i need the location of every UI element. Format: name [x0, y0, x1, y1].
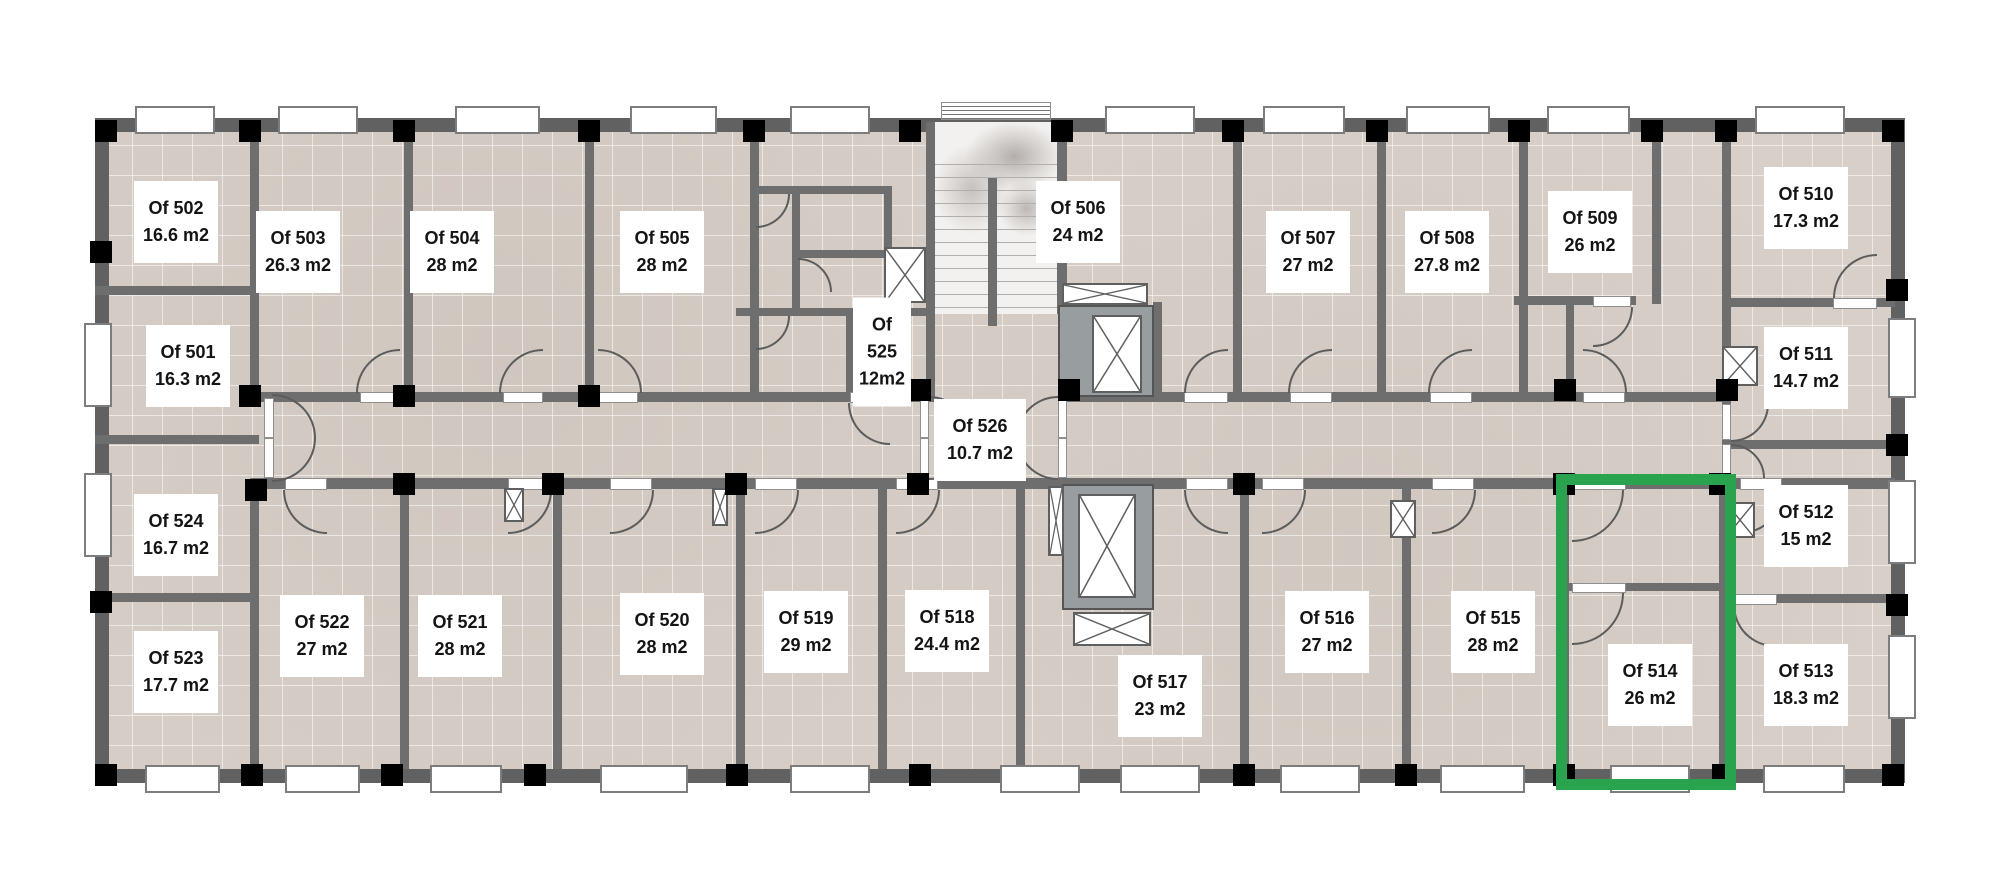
window — [1000, 765, 1080, 793]
room-id: Of 519 — [766, 605, 846, 632]
shaft-cross-icon — [1048, 486, 1064, 556]
room-id: Of 522 — [282, 609, 362, 636]
structural-column — [1233, 473, 1255, 495]
structural-column — [1058, 379, 1080, 401]
interior-wall — [1377, 132, 1386, 394]
room-label-of-504[interactable]: Of 50428 m2 — [410, 211, 494, 293]
room-label-of-524[interactable]: Of 52416.7 m2 — [134, 494, 218, 576]
door-opening — [1735, 594, 1777, 605]
structural-column — [1715, 120, 1737, 142]
window — [1280, 765, 1360, 793]
interior-wall — [250, 482, 259, 769]
structural-column — [1233, 764, 1255, 786]
structural-column — [1051, 120, 1073, 142]
room-label-of-511[interactable]: Of 51114.7 m2 — [1764, 327, 1848, 409]
door-opening — [1058, 438, 1067, 478]
door-opening — [1722, 444, 1731, 476]
room-area: 26 m2 — [1550, 232, 1630, 259]
room-id: Of 508 — [1407, 225, 1487, 252]
door-opening — [920, 398, 929, 438]
room-area: 28 m2 — [412, 252, 492, 279]
structural-column — [1886, 279, 1908, 301]
room-label-of-501[interactable]: Of 50116.3 m2 — [146, 325, 230, 407]
selected-room-highlight-of-514 — [1556, 474, 1736, 790]
window — [135, 106, 215, 134]
door-opening — [598, 392, 638, 403]
room-area: 28 m2 — [420, 636, 500, 663]
structural-column — [909, 379, 931, 401]
room-id: Of 509 — [1550, 205, 1630, 232]
room-id: Of 511 — [1766, 341, 1846, 368]
room-label-of-518[interactable]: Of 51824.4 m2 — [905, 590, 989, 672]
interior-wall — [884, 190, 892, 252]
room-label-of-506[interactable]: Of 50624 m2 — [1036, 181, 1120, 263]
structural-column — [1395, 764, 1417, 786]
structural-column — [239, 120, 261, 142]
window — [285, 765, 360, 793]
staircase-rail — [988, 178, 997, 326]
door-opening — [1058, 398, 1067, 438]
structural-column — [743, 120, 765, 142]
room-id: Of 520 — [622, 607, 702, 634]
room-id: Of 502 — [136, 195, 216, 222]
room-area: 27 m2 — [1268, 252, 1348, 279]
room-label-of-522[interactable]: Of 52227 m2 — [280, 595, 364, 677]
interior-wall — [585, 132, 594, 394]
shaft-cross-icon — [504, 488, 524, 522]
window — [1888, 635, 1916, 719]
room-area: 24 m2 — [1038, 222, 1118, 249]
interior-wall — [95, 435, 259, 444]
interior-wall — [1153, 302, 1162, 394]
window — [600, 765, 688, 793]
room-area: 14.7 m2 — [1766, 368, 1846, 395]
interior-wall — [750, 132, 759, 394]
room-area: 16.3 m2 — [148, 366, 228, 393]
structural-column — [1554, 379, 1576, 401]
interior-wall — [1722, 122, 1731, 304]
interior-wall — [1016, 482, 1025, 769]
room-id: Of 504 — [412, 225, 492, 252]
room-label-of-521[interactable]: Of 52128 m2 — [418, 595, 502, 677]
door-opening — [610, 478, 652, 490]
structural-column — [90, 591, 112, 613]
structural-column — [1508, 120, 1530, 142]
room-id: Of 526 — [936, 413, 1024, 440]
structural-column — [524, 764, 546, 786]
staircase-hatch — [941, 102, 1051, 120]
shaft-cross-icon — [1078, 494, 1136, 598]
room-id: Of 525 — [855, 312, 909, 366]
room-area: 10.7 m2 — [936, 440, 1024, 467]
room-id: Of 517 — [1120, 669, 1200, 696]
room-label-of-517[interactable]: Of 51723 m2 — [1118, 655, 1202, 737]
room-id: Of 510 — [1766, 181, 1846, 208]
door-opening — [1593, 296, 1631, 307]
room-id: Of 512 — [1766, 499, 1846, 526]
room-label-of-508[interactable]: Of 50827.8 m2 — [1405, 211, 1489, 293]
structural-column — [245, 479, 267, 501]
structural-column — [1882, 764, 1904, 786]
window — [1406, 106, 1490, 134]
interior-wall — [1067, 392, 1731, 402]
window — [1105, 106, 1195, 134]
structural-column — [725, 473, 747, 495]
floor-plan: Of 50216.6 m2Of 50326.3 m2Of 50428 m2Of … — [0, 0, 2000, 891]
room-area: 27 m2 — [1287, 632, 1367, 659]
room-id: Of 521 — [420, 609, 500, 636]
structural-column — [1886, 434, 1908, 456]
door-opening — [1432, 478, 1474, 490]
door-opening — [1722, 404, 1731, 440]
shaft-cross-icon — [1092, 315, 1142, 393]
door-opening — [1186, 478, 1228, 490]
room-area: 17.7 m2 — [136, 672, 216, 699]
interior-wall — [792, 250, 892, 258]
door-opening — [1184, 392, 1228, 403]
door-opening — [1583, 392, 1625, 403]
shaft-cross-icon — [884, 247, 926, 303]
shaft-cross-icon — [1073, 612, 1151, 646]
room-label-of-523[interactable]: Of 52317.7 m2 — [134, 631, 218, 713]
structural-column — [90, 241, 112, 263]
room-id: Of 513 — [1766, 658, 1846, 685]
structural-column — [393, 120, 415, 142]
structural-column — [1366, 120, 1388, 142]
interior-wall — [750, 186, 892, 194]
room-id: Of 505 — [622, 225, 702, 252]
structural-column — [1886, 594, 1908, 616]
room-label-of-509[interactable]: Of 50926 m2 — [1548, 191, 1632, 273]
structural-column — [1222, 120, 1244, 142]
door-opening — [1430, 392, 1472, 403]
interior-wall — [1240, 482, 1249, 769]
interior-wall — [1233, 132, 1242, 394]
interior-wall — [1652, 132, 1661, 304]
room-area: 26.3 m2 — [258, 252, 338, 279]
window — [790, 106, 870, 134]
room-id: Of 523 — [136, 645, 216, 672]
structural-column — [1882, 120, 1904, 142]
window — [278, 106, 358, 134]
room-id: Of 518 — [907, 604, 987, 631]
room-id: Of 506 — [1038, 195, 1118, 222]
room-area: 27.8 m2 — [1407, 252, 1487, 279]
room-label-of-513[interactable]: Of 51318.3 m2 — [1764, 644, 1848, 726]
room-area: 29 m2 — [766, 632, 846, 659]
window — [84, 323, 112, 407]
room-area: 17.3 m2 — [1766, 208, 1846, 235]
structural-column — [393, 385, 415, 407]
window — [1888, 480, 1916, 564]
interior-wall — [553, 482, 562, 769]
room-area: 12m2 — [855, 366, 909, 393]
room-label-of-515[interactable]: Of 51528 m2 — [1451, 591, 1535, 673]
interior-wall — [400, 482, 409, 769]
room-area: 18.3 m2 — [1766, 685, 1846, 712]
window — [430, 765, 502, 793]
room-id: Of 516 — [1287, 605, 1367, 632]
structural-column — [909, 764, 931, 786]
window — [455, 106, 540, 134]
window — [1440, 765, 1525, 793]
room-label-of-526[interactable]: Of 52610.7 m2 — [934, 399, 1026, 481]
room-area: 28 m2 — [1453, 632, 1533, 659]
window — [1547, 106, 1630, 134]
structural-column — [899, 120, 921, 142]
structural-column — [241, 764, 263, 786]
window — [145, 765, 220, 793]
interior-wall — [736, 482, 745, 769]
room-label-of-520[interactable]: Of 52028 m2 — [620, 593, 704, 675]
room-area: 16.6 m2 — [136, 222, 216, 249]
structural-column — [542, 473, 564, 495]
window — [1120, 765, 1200, 793]
interior-wall — [1519, 132, 1528, 394]
door-opening — [1290, 392, 1332, 403]
door-opening — [285, 478, 327, 490]
exterior-wall — [95, 118, 109, 783]
shaft-cross-icon — [1062, 283, 1148, 305]
window — [1755, 106, 1845, 134]
room-label-of-516[interactable]: Of 51627 m2 — [1285, 591, 1369, 673]
interior-wall — [95, 286, 259, 295]
structural-column — [381, 764, 403, 786]
interior-wall — [95, 593, 259, 602]
interior-wall — [878, 482, 887, 769]
structural-column — [578, 120, 600, 142]
shaft-cross-icon — [1390, 500, 1416, 538]
room-label-of-502[interactable]: Of 50216.6 m2 — [134, 181, 218, 263]
structural-column — [95, 120, 117, 142]
window — [1888, 318, 1916, 398]
structural-column — [95, 764, 117, 786]
door-opening — [755, 478, 797, 490]
room-area: 24.4 m2 — [907, 631, 987, 658]
structural-column — [239, 385, 261, 407]
room-id: Of 503 — [258, 225, 338, 252]
room-area: 28 m2 — [622, 634, 702, 661]
structural-column — [907, 473, 929, 495]
room-label-of-503[interactable]: Of 50326.3 m2 — [256, 211, 340, 293]
structural-column — [726, 764, 748, 786]
window — [790, 765, 870, 793]
room-label-of-507[interactable]: Of 50727 m2 — [1266, 211, 1350, 293]
room-id: Of 524 — [136, 508, 216, 535]
room-area: 27 m2 — [282, 636, 362, 663]
room-label-of-525[interactable]: Of 52512m2 — [853, 298, 911, 407]
door-opening — [920, 438, 929, 478]
room-label-of-519[interactable]: Of 51929 m2 — [764, 591, 848, 673]
structural-column — [393, 473, 415, 495]
window — [84, 473, 112, 557]
window — [630, 106, 717, 134]
structural-column — [1716, 379, 1738, 401]
door-opening — [503, 392, 543, 403]
room-id: Of 507 — [1268, 225, 1348, 252]
door-opening — [1262, 478, 1304, 490]
window — [1763, 765, 1845, 793]
room-area: 16.7 m2 — [136, 535, 216, 562]
room-label-of-505[interactable]: Of 50528 m2 — [620, 211, 704, 293]
room-area: 28 m2 — [622, 252, 702, 279]
structural-column — [1641, 120, 1663, 142]
room-label-of-512[interactable]: Of 51215 m2 — [1764, 485, 1848, 567]
room-area: 15 m2 — [1766, 526, 1846, 553]
door-opening — [1833, 298, 1877, 309]
interior-wall — [926, 122, 935, 396]
room-area: 23 m2 — [1120, 696, 1200, 723]
room-id: Of 515 — [1453, 605, 1533, 632]
window — [1263, 106, 1345, 134]
structural-column — [578, 385, 600, 407]
room-id: Of 501 — [148, 339, 228, 366]
room-label-of-510[interactable]: Of 51017.3 m2 — [1764, 167, 1848, 249]
